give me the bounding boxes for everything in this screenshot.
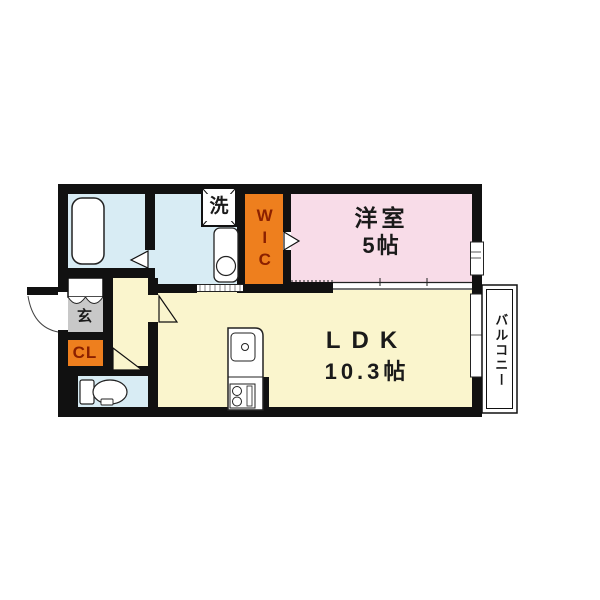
bedroom-label: 洋室 5帖: [291, 205, 472, 259]
wall-closet-top: [58, 332, 113, 340]
wall-wic-bedroom-lower: [283, 250, 291, 284]
ldk-label: LDK 10.3帖: [258, 327, 476, 385]
wall-corridor-ldk-lower: [148, 322, 158, 407]
wall-wic-bedroom-upper: [283, 194, 291, 232]
wall-corridor-ldk-upper: [148, 278, 158, 295]
wall-entrance-door-stub: [27, 287, 58, 295]
floorplan-canvas: 洋室 5帖 LDK 10.3帖 WIC CL 玄 洗 バルコニー: [0, 0, 600, 600]
wall-bath-washroom: [145, 194, 155, 250]
wall-outer-right-a: [472, 184, 482, 242]
ldk-size: 10.3帖: [258, 359, 476, 385]
bedroom-size: 5帖: [291, 233, 472, 259]
toilet-floor: [78, 376, 148, 407]
entrance-door-swing-arc: [28, 296, 58, 332]
bedroom-window: [471, 242, 484, 275]
corridor-door-opening: [148, 295, 158, 322]
wall-outer-bottom: [58, 407, 482, 417]
wall-washroom-wic: [237, 194, 245, 284]
wall-entrance-corridor: [103, 278, 113, 366]
balcony-label: バルコニー: [487, 291, 514, 409]
bedroom-name: 洋室: [291, 205, 472, 233]
corridor-floor: [113, 278, 148, 366]
wall-outer-top: [58, 184, 482, 194]
wall-toilet-left: [58, 376, 78, 407]
bathroom-floor: [68, 194, 145, 268]
ldk-name: LDK: [258, 327, 476, 356]
wic-door-opening: [283, 232, 291, 250]
wall-outer-right-b: [472, 275, 482, 295]
wall-washroom-bottom: [155, 284, 197, 293]
closet-label: CL: [66, 341, 104, 366]
wall-toilet-top: [58, 366, 158, 376]
entrance-label: 玄: [66, 304, 103, 330]
wic-label: WIC: [245, 197, 283, 281]
laundry-label: 洗: [205, 194, 233, 221]
bathroom-door-opening: [145, 250, 155, 268]
wall-bathroom-bottom: [58, 268, 155, 278]
